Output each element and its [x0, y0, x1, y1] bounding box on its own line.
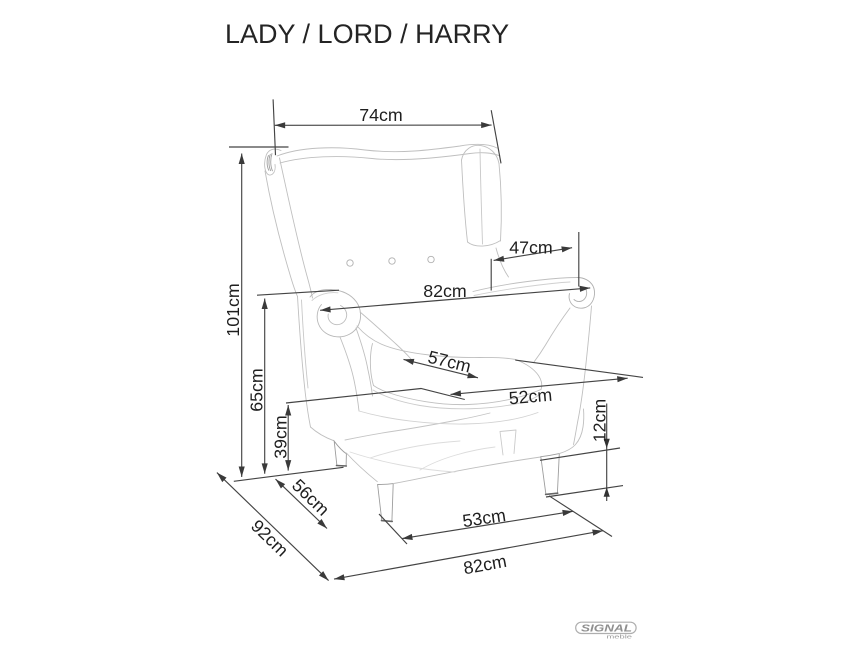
svg-text:47cm: 47cm [509, 238, 552, 258]
svg-text:52cm: 52cm [508, 385, 553, 409]
svg-text:65cm: 65cm [247, 368, 267, 411]
svg-text:57cm: 57cm [426, 347, 473, 377]
svg-text:92cm: 92cm [247, 516, 292, 561]
svg-text:53cm: 53cm [461, 505, 507, 531]
svg-text:74cm: 74cm [359, 105, 402, 125]
svg-text:SIGNAL: SIGNAL [581, 624, 632, 635]
svg-text:82cm: 82cm [423, 281, 466, 301]
svg-text:12cm: 12cm [590, 399, 610, 442]
svg-text:LADY / LORD / HARRY: LADY / LORD / HARRY [225, 19, 509, 49]
svg-text:101cm: 101cm [223, 283, 243, 336]
svg-text:meble: meble [607, 634, 633, 640]
svg-text:39cm: 39cm [271, 415, 291, 458]
